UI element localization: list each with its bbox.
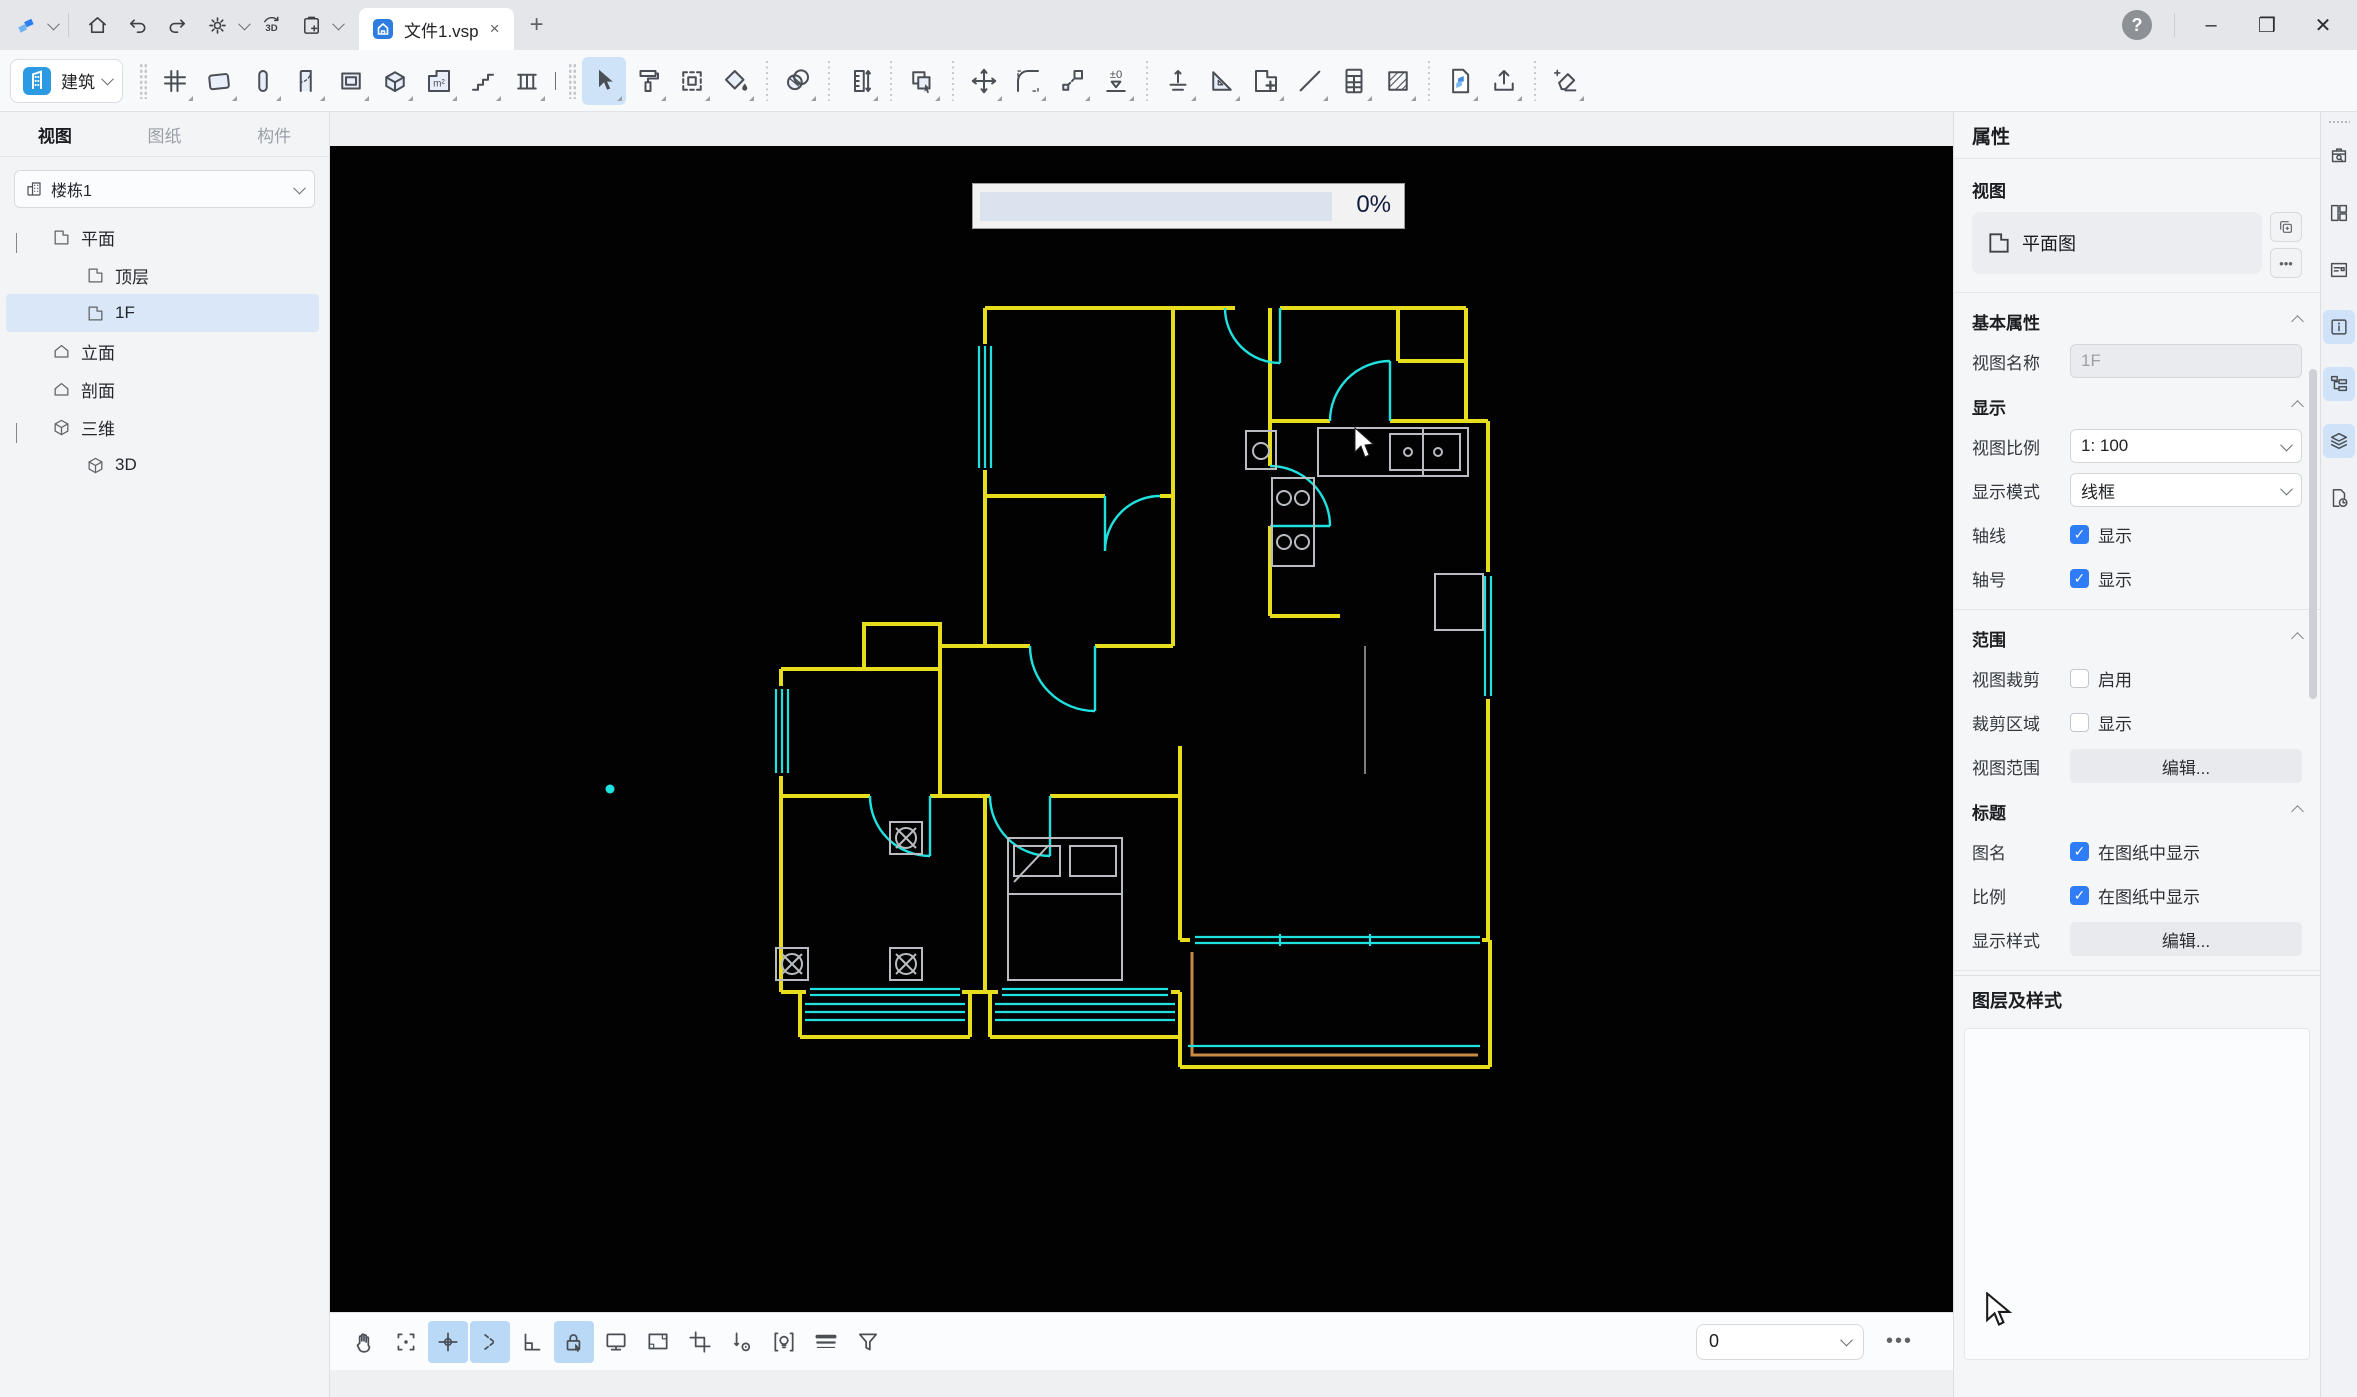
filter-icon[interactable] [848,1321,888,1363]
view-group-label: 视图 [1972,177,2006,202]
tree-item-三维[interactable]: 三维 [6,408,319,446]
application-window: 3D 文件1.vsp × + ? – ❒ ✕ 建筑 m² ±0 视图图纸构件 [0,0,2357,1397]
view-control-bar: 0 ••• [330,1312,1953,1370]
view-tab-bar [330,112,1953,146]
copy-icon[interactable] [900,57,944,105]
svg-text:3D: 3D [265,23,277,34]
canvas-cursor-icon [1355,428,1373,457]
tree-item-label: 立面 [81,339,115,364]
crop-region-label: 裁剪区域 [1972,710,2070,735]
line-weight-icon[interactable] [806,1321,846,1363]
view-scale-label: 视图比例 [1972,434,2070,459]
cube-icon [86,456,105,475]
view-tree: 平面顶层1F立面剖面三维3D [0,218,329,484]
edit-tools-group: ±0 [582,57,1588,105]
home-icon[interactable] [77,6,117,44]
door-icon[interactable] [285,57,329,105]
drawing-canvas[interactable]: 0% [330,146,1953,1312]
window-icon[interactable] [329,57,373,105]
redo-icon[interactable] [157,6,197,44]
tree-item-剖面[interactable]: 剖面 [6,370,319,408]
view-crop-checkbox[interactable] [2070,669,2089,688]
expand-caret-icon[interactable] [16,423,17,443]
chevron-down-icon[interactable] [555,72,556,90]
tree-item-立面[interactable]: 立面 [6,332,319,370]
progress-bar-fill [980,192,1332,221]
app-logo-icon[interactable] [6,6,46,44]
close-button[interactable]: ✕ [2295,3,2351,47]
window-controls: ? – ❒ ✕ [2122,3,2351,47]
scale-show-label: 比例 [1972,883,2070,908]
undo-icon[interactable] [117,6,157,44]
fillet-icon[interactable] [1006,57,1050,105]
duplicate-view-icon[interactable] [2270,212,2302,242]
app-menu-caret[interactable] [46,6,60,44]
minimize-button[interactable]: – [2183,3,2239,47]
grid-lines-label: 轴线 [1972,522,2070,547]
close-document-icon[interactable]: × [488,19,502,39]
more-options-icon[interactable]: ••• [2270,248,2302,278]
progress-percent: 0% [1356,191,1391,219]
viewport-icon[interactable] [638,1321,678,1363]
tree-item-平面[interactable]: 平面 [6,218,319,256]
view-type-label: 平面图 [2022,230,2076,256]
discipline-mode-button[interactable]: 建筑 [10,59,123,103]
view-3d-icon[interactable]: 3D [251,6,291,44]
display-mode-select[interactable]: 线框 [2070,473,2302,507]
hatch-icon[interactable] [1376,57,1420,105]
expand-caret-icon[interactable] [16,233,17,253]
cube-icon [52,418,71,437]
properties-panel: 属性 视图 平面图 ••• 基本属性 视图名称 1F 显示 视图比 [1953,112,2320,1397]
stairs-icon[interactable] [461,57,505,105]
light-icon[interactable] [764,1321,804,1363]
chevron-down-icon [293,181,306,194]
box-select-icon[interactable] [670,57,714,105]
grid-numbers-checkbox-label: 显示 [2098,566,2132,591]
snap-icon[interactable] [428,1321,468,1363]
structure-tree-icon[interactable] [2323,367,2355,401]
view-range-edit-button[interactable]: 编辑... [2070,749,2302,783]
display-mode-label: 显示模式 [1972,478,2070,503]
range-section-title: 范围 [1972,626,2006,651]
opening-icon[interactable] [373,57,417,105]
grid-lines-checkbox[interactable]: ✓ [2070,525,2089,544]
cleanup-icon[interactable] [1544,57,1588,105]
view-name-label: 视图名称 [1972,349,2070,374]
right-icon-rail [2320,112,2357,1397]
tree-item-3D[interactable]: 3D [6,446,319,484]
schedule-icon[interactable] [1332,57,1376,105]
grid-lines-checkbox-label: 显示 [2098,522,2132,547]
floor-plan-drawing [330,146,1953,1312]
divider [827,61,831,101]
zoom-fit-icon[interactable] [386,1321,426,1363]
building-selector[interactable]: 楼栋1 [14,170,315,208]
document-tab[interactable]: 文件1.vsp × [359,8,514,50]
settings-gear-icon[interactable] [197,6,237,44]
ribbon-toolbar: 建筑 m² ±0 [0,50,2357,112]
layout-icon[interactable] [2323,196,2355,230]
display-icon[interactable] [596,1321,636,1363]
house-icon [52,342,71,361]
divider [765,61,769,101]
plan-icon [86,266,105,285]
track-icon[interactable] [470,1321,510,1363]
divider [951,61,955,101]
layers-icon[interactable] [2323,424,2355,458]
properties-panel-title: 属性 [1954,112,2320,159]
crop-region-checkbox[interactable] [2070,713,2089,732]
paste-caret[interactable] [331,6,345,44]
chevron-up-icon[interactable] [2291,400,2304,413]
line-icon[interactable] [1288,57,1332,105]
crop-region-checkbox-label: 显示 [2098,710,2132,735]
chevron-down-icon [1840,1334,1853,1347]
pan-icon[interactable] [344,1321,384,1363]
scale-show-checkbox[interactable]: ✓ [2070,886,2089,905]
view-name-input[interactable]: 1F [2070,344,2302,378]
component-search-icon[interactable] [2323,139,2355,173]
drawing-name-label: 图名 [1972,839,2070,864]
measure-icon[interactable] [838,57,882,105]
building-selector-label: 楼栋1 [51,177,287,201]
document-icon [371,17,395,41]
divider [889,61,893,101]
drawing-name-checkbox[interactable]: ✓ [2070,842,2089,861]
chevron-up-icon[interactable] [2291,315,2304,328]
sheet-note-icon[interactable] [2323,253,2355,287]
paste-icon[interactable] [291,6,331,44]
mouse-cursor-icon [1984,1292,2014,1326]
display-style-label: 显示样式 [1972,927,2070,952]
mode-label: 建筑 [61,68,95,93]
info-icon[interactable] [2323,310,2355,344]
view-crop-checkbox-label: 启用 [2098,666,2132,691]
drag-handle[interactable] [139,63,147,99]
material-icon[interactable] [776,57,820,105]
sidebar-tab-2[interactable]: 图纸 [110,122,220,147]
drawing-name-checkbox-label: 在图纸中显示 [2098,839,2200,864]
drag-handle[interactable] [2328,120,2350,125]
display-style-edit-button[interactable]: 编辑... [2070,922,2302,956]
view-range-label: 视图范围 [1972,754,2070,779]
chevron-up-icon[interactable] [2291,632,2304,645]
svg-text:±0: ±0 [1110,68,1122,80]
plan-icon [86,304,105,323]
move-icon[interactable] [962,57,1006,105]
building-icon [25,180,43,198]
format-painter-icon[interactable] [626,57,670,105]
tree-item-1F[interactable]: 1F [6,294,319,332]
help-icon[interactable]: ? [2122,10,2152,40]
view-scale-select[interactable]: 1: 100 [2070,429,2302,463]
sidebar-tab-1[interactable]: 视图 [0,122,110,147]
lock-select-icon[interactable] [554,1321,594,1363]
plan-icon [52,228,71,247]
title-section-title: 标题 [1972,799,2006,824]
progress-bar: 0% [972,183,1405,229]
chevron-down-icon [2280,438,2293,451]
plan-view-icon [1986,230,2012,256]
history-icon[interactable] [2323,481,2355,515]
export-icon[interactable] [1482,57,1526,105]
drag-handle[interactable] [568,63,576,99]
tree-item-label: 1F [115,303,135,323]
align-icon[interactable] [1156,57,1200,105]
panel-scrollbar[interactable] [2309,369,2317,699]
room-area-icon[interactable]: m² [417,57,461,105]
view-type-card[interactable]: 平面图 [1972,212,2262,274]
tree-item-label: 3D [115,455,137,475]
scale-show-checkbox-label: 在图纸中显示 [2098,883,2200,908]
building-mode-icon [21,65,53,97]
plan-add-icon[interactable] [1244,57,1288,105]
chevron-down-icon [2280,482,2293,495]
canvas-area: 0% 0 ••• [330,112,1953,1397]
title-bar: 3D 文件1.vsp × + ? – ❒ ✕ [0,0,2357,50]
divider [1533,61,1537,101]
level-value: 0 [1709,1331,1842,1352]
chevron-up-icon[interactable] [2291,805,2304,818]
house-icon [52,380,71,399]
svg-text:m²: m² [433,78,445,89]
new-tab-button[interactable]: + [530,11,544,39]
display-section-title: 显示 [1972,394,2006,419]
grid-numbers-label: 轴号 [1972,566,2070,591]
level-icon[interactable]: ±0 [1094,57,1138,105]
layers-styles-title: 图层及样式 [1954,976,2320,1024]
project-browser-sidebar: 视图图纸构件 楼栋1 平面顶层1F立面剖面三维3D [0,112,330,1397]
build-tools-group: m² [153,57,549,105]
more-options-icon[interactable]: ••• [1886,1330,1913,1353]
maximize-button[interactable]: ❒ [2239,3,2295,47]
measure-point-icon[interactable] [722,1321,762,1363]
tree-item-label: 三维 [81,415,115,440]
column-icon[interactable] [241,57,285,105]
settings-caret[interactable] [237,6,251,44]
view-crop-label: 视图裁剪 [1972,666,2070,691]
wall-icon[interactable] [197,57,241,105]
divider [1145,61,1149,101]
grid-numbers-checkbox[interactable]: ✓ [2070,569,2089,588]
basic-section-title: 基本属性 [1972,309,2040,334]
crop-view-icon[interactable] [680,1321,720,1363]
sidebar-tab-3[interactable]: 构件 [219,122,329,147]
tree-item-顶层[interactable]: 顶层 [6,256,319,294]
scale-icon[interactable] [1050,57,1094,105]
divider [1427,61,1431,101]
ortho-icon[interactable] [512,1321,552,1363]
tree-item-label: 顶层 [115,263,149,288]
tree-item-label: 平面 [81,225,115,250]
fill-icon[interactable] [714,57,758,105]
railing-icon[interactable] [505,57,549,105]
chevron-down-icon [101,73,114,86]
divider [2174,13,2175,37]
document-tab-label: 文件1.vsp [404,17,479,42]
import-icon[interactable] [1438,57,1482,105]
status-strip [330,1370,1953,1397]
sidebar-tabs: 视图图纸构件 [0,112,329,157]
select-icon[interactable] [582,57,626,105]
properties-scroll-area[interactable]: 视图 平面图 ••• 基本属性 视图名称 1F 显示 视图比例 1: 1 [1954,159,2320,975]
selection-point[interactable] [606,785,615,794]
tree-item-label: 剖面 [81,377,115,402]
divider [68,13,69,37]
triangle-ruler-icon[interactable] [1200,57,1244,105]
layers-styles-content [1964,1028,2310,1360]
grid-icon[interactable] [153,57,197,105]
level-dropdown[interactable]: 0 [1696,1324,1864,1360]
